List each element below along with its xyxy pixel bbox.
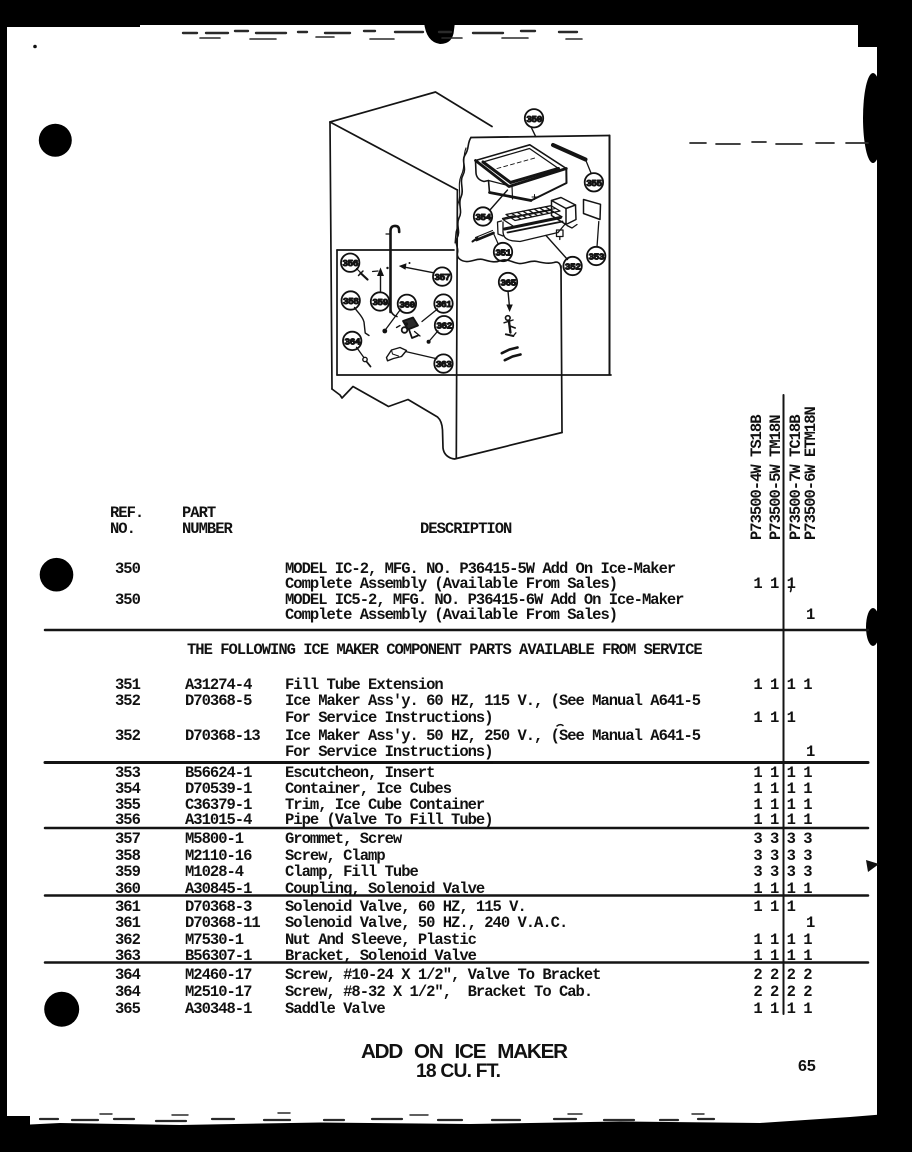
svg-text:356: 356 (342, 258, 358, 269)
svg-text:360: 360 (399, 299, 415, 310)
svg-text:363: 363 (436, 359, 452, 370)
svg-text:362: 362 (436, 321, 452, 332)
svg-text:357: 357 (434, 272, 450, 283)
svg-text:361: 361 (436, 299, 452, 310)
svg-text:350: 350 (526, 114, 542, 125)
svg-text:355: 355 (586, 178, 602, 189)
svg-text:352: 352 (565, 262, 581, 273)
svg-text:354: 354 (475, 212, 491, 223)
svg-text:353: 353 (588, 252, 604, 263)
svg-text:358: 358 (343, 296, 359, 307)
svg-text:359: 359 (372, 297, 388, 308)
svg-text:365: 365 (500, 278, 516, 289)
svg-text:364: 364 (344, 336, 360, 347)
svg-text:351: 351 (495, 248, 511, 259)
